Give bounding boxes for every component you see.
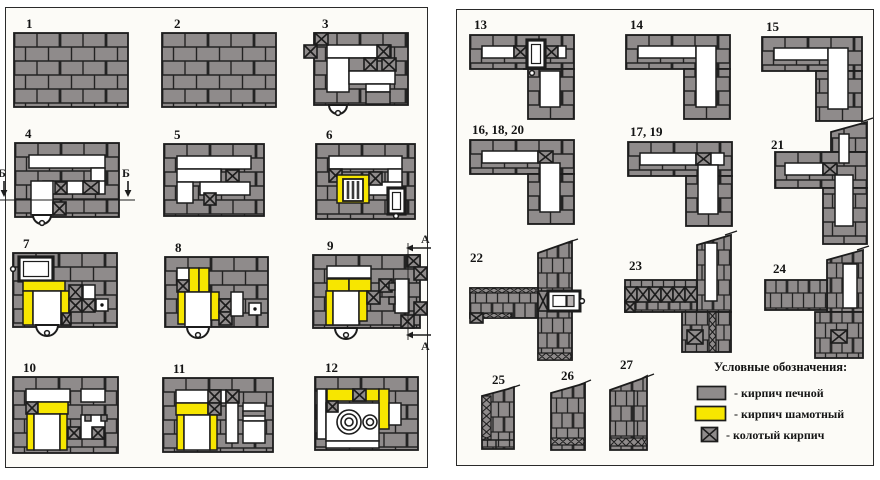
course-diagram-12: 12 xyxy=(315,377,418,450)
legend-label-fireclay-brick: - кирпич шамотный xyxy=(734,407,844,422)
legend-label-stove-brick: - кирпич печной xyxy=(734,386,824,401)
course-diagram-label-11: 11 xyxy=(173,362,185,375)
svg-text:Б: Б xyxy=(0,166,6,180)
course-diagram-4: ББ4 xyxy=(15,143,119,217)
legend-item-split-brick: - колотый кирпич xyxy=(700,426,880,444)
course-diagram-label-16-18-20: 16, 18, 20 xyxy=(472,123,524,136)
course-diagram-1: 1 xyxy=(14,33,128,107)
stove-brick-course-diagram-page: 1 2 3 ББ4 5 6 xyxy=(0,0,880,480)
course-diagram-6: 6 xyxy=(316,144,415,219)
course-diagram-label-14: 14 xyxy=(630,18,643,31)
course-diagram-label-8: 8 xyxy=(175,241,182,254)
course-diagram-10: 10 xyxy=(13,377,118,453)
course-diagram-label-2: 2 xyxy=(174,17,181,30)
course-diagram-label-10: 10 xyxy=(23,361,36,374)
course-diagram-14: 14 xyxy=(626,35,730,119)
course-diagram-label-6: 6 xyxy=(326,128,333,141)
course-diagram-5: 5 xyxy=(164,144,264,216)
course-diagram-23: 23 xyxy=(625,235,731,352)
course-diagram-label-27: 27 xyxy=(620,358,633,371)
course-diagram-8: 8 xyxy=(165,257,268,327)
svg-text:А: А xyxy=(421,232,430,246)
legend-title: Условные обозначения: xyxy=(714,360,880,375)
course-diagram-label-21: 21 xyxy=(771,138,784,151)
stove-brick-swatch-icon xyxy=(696,385,728,402)
course-diagram-26: 26 xyxy=(551,383,585,450)
course-diagram-label-24: 24 xyxy=(773,262,786,275)
svg-text:Б: Б xyxy=(122,166,130,180)
course-diagram-label-9: 9 xyxy=(327,239,334,252)
legend: Условные обозначения: - кирпич печной - … xyxy=(688,360,880,447)
course-diagram-label-4: 4 xyxy=(25,127,32,140)
course-diagram-label-26: 26 xyxy=(561,369,574,382)
legend-item-stove-brick: - кирпич печной xyxy=(696,385,880,402)
course-diagram-label-1: 1 xyxy=(26,17,33,30)
course-diagram-25: 25 xyxy=(482,387,516,449)
course-diagram-2: 2 xyxy=(162,33,276,107)
course-diagram-label-3: 3 xyxy=(322,17,329,30)
legend-item-fireclay-brick: - кирпич шамотный xyxy=(694,405,880,423)
course-diagram-label-17-19: 17, 19 xyxy=(630,125,663,138)
course-diagram-label-22: 22 xyxy=(470,251,483,264)
course-diagram-label-7: 7 xyxy=(23,237,30,250)
course-diagram-22: 22 xyxy=(470,243,604,360)
course-diagram-13: 13 xyxy=(470,35,574,119)
course-diagram-11: 11 xyxy=(163,378,273,452)
svg-text:А: А xyxy=(421,339,430,353)
course-diagram-7: 7 xyxy=(13,253,117,327)
course-diagram-15: 15 xyxy=(762,37,862,121)
course-diagram-3: 3 xyxy=(314,33,408,105)
course-diagram-label-13: 13 xyxy=(474,18,487,31)
fireclay-brick-swatch-icon xyxy=(694,405,728,423)
course-diagram-27: 27 xyxy=(610,376,647,450)
course-diagram-label-23: 23 xyxy=(629,259,642,272)
course-diagram-label-5: 5 xyxy=(174,128,181,141)
course-diagram-label-12: 12 xyxy=(325,361,338,374)
course-diagram-label-15: 15 xyxy=(766,20,779,33)
course-diagram-17-19: 17, 19 xyxy=(628,142,732,226)
split-brick-swatch-icon xyxy=(700,426,720,444)
course-diagram-16-18-20: 16, 18, 20 xyxy=(470,140,574,224)
course-diagram-9: АА9 xyxy=(313,255,420,328)
course-diagram-label-25: 25 xyxy=(492,373,505,386)
course-diagram-24: 24 xyxy=(765,248,863,358)
course-diagram-21: 21 xyxy=(775,152,867,244)
legend-label-split-brick: - колотый кирпич xyxy=(726,428,824,443)
